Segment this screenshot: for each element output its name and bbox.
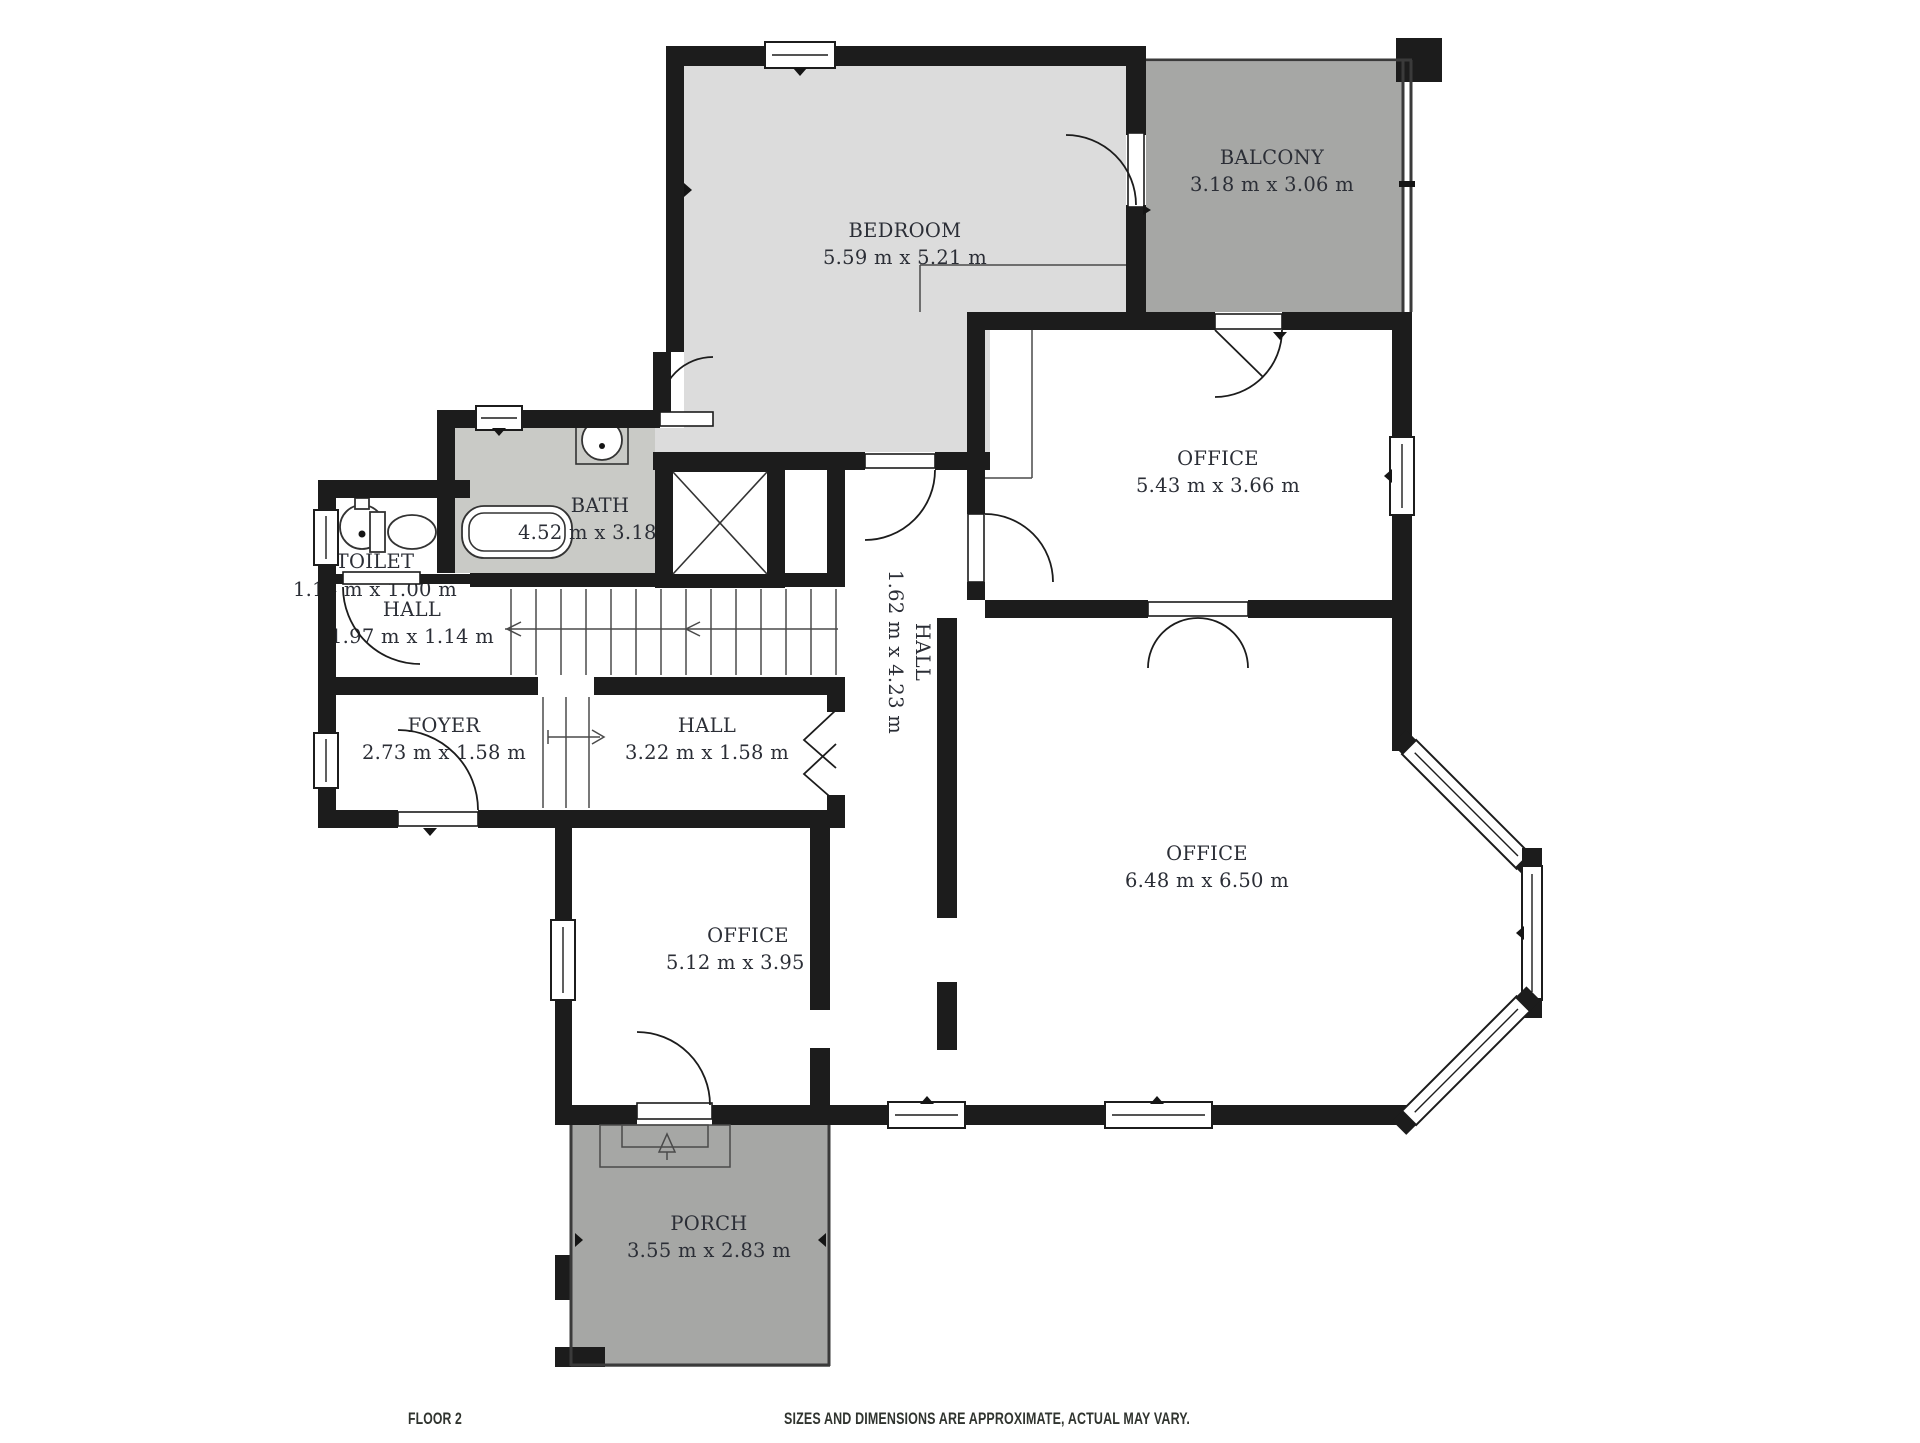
svg-text:OFFICE: OFFICE xyxy=(1166,842,1248,865)
vanity-drain-icon xyxy=(599,443,605,449)
svg-text:HALL: HALL xyxy=(383,598,441,621)
svg-text:3.22 m x 1.58 m: 3.22 m x 1.58 m xyxy=(625,741,789,764)
svg-text:6.48 m x 6.50 m: 6.48 m x 6.50 m xyxy=(1125,869,1289,892)
window xyxy=(1390,437,1414,515)
floor-plan-drawing: BEDROOM 5.59 m x 5.21 m BALCONY 3.18 m x… xyxy=(0,0,1920,1443)
staircase xyxy=(505,589,838,808)
svg-text:OFFICE: OFFICE xyxy=(1177,447,1259,470)
door-double-office xyxy=(1148,602,1248,668)
room-label-hall-mid: HALL 3.22 m x 1.58 m xyxy=(625,714,789,764)
shaft-x xyxy=(673,472,767,574)
window xyxy=(314,733,338,788)
door-bedroom-hall xyxy=(865,454,935,540)
floor-plan-page: BEDROOM 5.59 m x 5.21 m BALCONY 3.18 m x… xyxy=(0,0,1920,1443)
svg-text:5.12 m x 3.95 m: 5.12 m x 3.95 m xyxy=(666,951,830,974)
sink-drain-icon xyxy=(359,531,366,538)
door-office-side xyxy=(968,514,1053,582)
room-label-office-big: OFFICE 6.48 m x 6.50 m xyxy=(1125,842,1289,892)
window xyxy=(551,920,575,1000)
stair-lower-flight xyxy=(543,697,604,808)
svg-text:1.62 m x 4.23 m: 1.62 m x 4.23 m xyxy=(884,570,907,734)
svg-text:TOILET: TOILET xyxy=(336,550,415,573)
door-office-top xyxy=(1215,314,1282,397)
window xyxy=(476,406,522,430)
svg-text:BATH: BATH xyxy=(571,494,630,517)
sink-tap-icon xyxy=(355,498,369,509)
room-label-hall-small: HALL 1.97 m x 1.14 m xyxy=(330,598,494,648)
svg-text:BALCONY: BALCONY xyxy=(1220,146,1325,169)
svg-text:3.18 m x 3.06 m: 3.18 m x 3.06 m xyxy=(1190,173,1354,196)
svg-text:5.59 m x 5.21 m: 5.59 m x 5.21 m xyxy=(823,246,987,269)
toilet-tank-icon xyxy=(370,512,385,552)
room-label-foyer: FOYER 2.73 m x 1.58 m xyxy=(362,714,526,764)
stair-treads xyxy=(511,589,836,675)
footer: FLOOR 2 SIZES AND DIMENSIONS ARE APPROXI… xyxy=(408,1409,1190,1428)
svg-text:PORCH: PORCH xyxy=(670,1212,747,1235)
disclaimer-text: SIZES AND DIMENSIONS ARE APPROXIMATE, AC… xyxy=(784,1409,1190,1428)
svg-text:5.43 m x 3.66 m: 5.43 m x 3.66 m xyxy=(1136,474,1300,497)
toilet-bowl-icon xyxy=(388,515,436,549)
window xyxy=(765,42,835,68)
svg-text:HALL: HALL xyxy=(678,714,736,737)
room-label-office-mid: OFFICE 5.12 m x 3.95 m xyxy=(666,924,830,974)
window xyxy=(888,1102,965,1128)
window xyxy=(314,510,338,565)
svg-text:HALL: HALL xyxy=(911,623,934,681)
svg-text:OFFICE: OFFICE xyxy=(707,924,789,947)
window xyxy=(1105,1102,1212,1128)
floor-label: FLOOR 2 xyxy=(408,1409,462,1428)
svg-text:3.55 m x 2.83 m: 3.55 m x 2.83 m xyxy=(627,1239,791,1262)
door-chevrons xyxy=(804,710,836,802)
room-label-office-top: OFFICE 5.43 m x 3.66 m xyxy=(1136,447,1300,497)
stair-direction-arrow xyxy=(505,622,838,636)
room-label-hall-vertical: HALL 1.62 m x 4.23 m xyxy=(884,570,934,734)
svg-text:BEDROOM: BEDROOM xyxy=(849,219,962,242)
door-front xyxy=(637,1032,712,1119)
